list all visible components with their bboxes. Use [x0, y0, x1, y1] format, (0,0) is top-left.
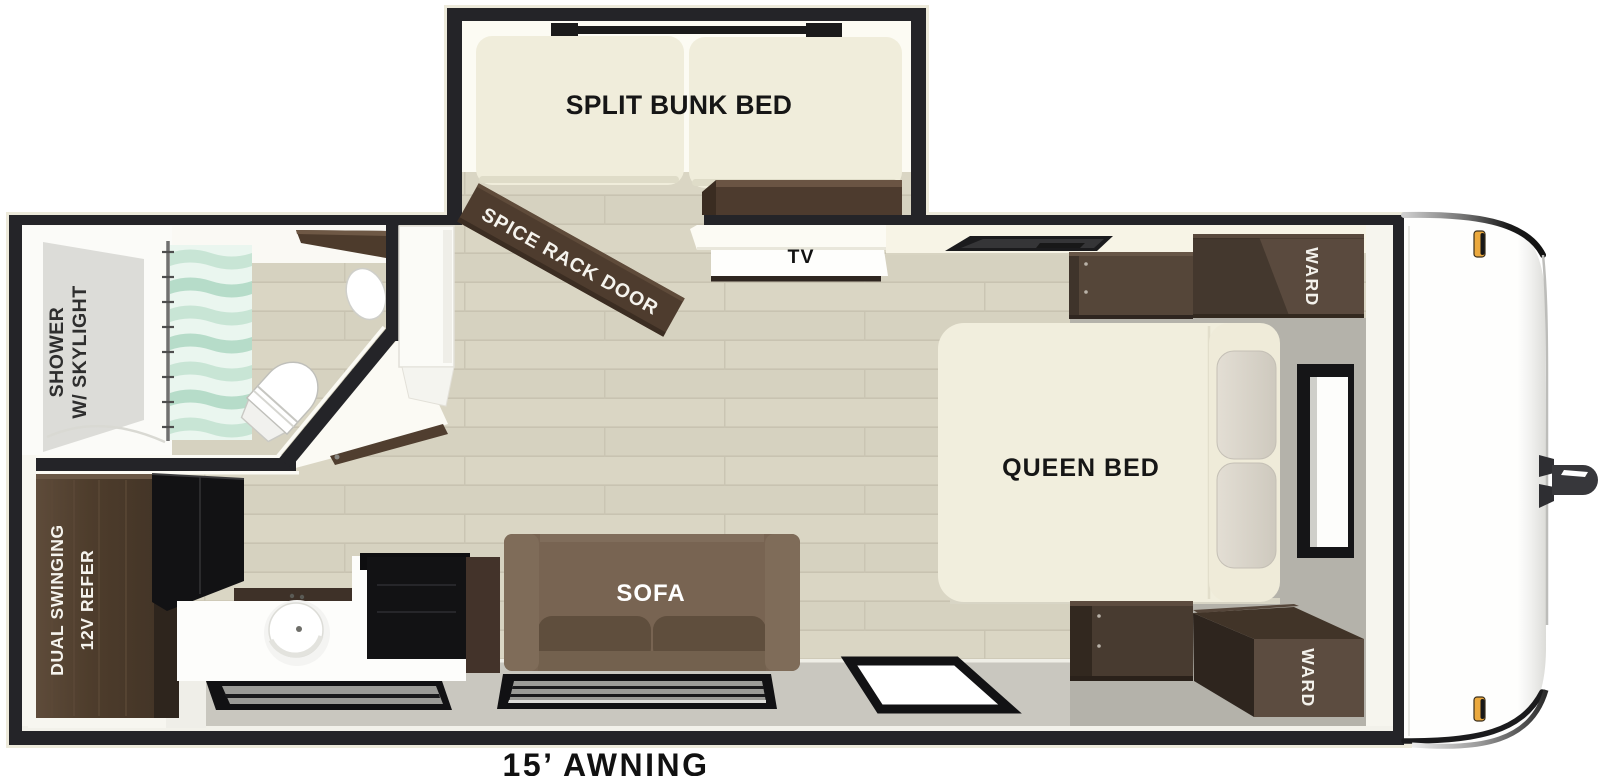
- svg-text:QUEEN BED: QUEEN BED: [1002, 454, 1160, 482]
- svg-text:W/ SKYLIGHT: W/ SKYLIGHT: [69, 285, 91, 418]
- svg-text:12V REFER: 12V REFER: [77, 550, 97, 651]
- svg-text:WARD: WARD: [1298, 648, 1318, 707]
- svg-text:15’ AWNING: 15’ AWNING: [503, 747, 710, 776]
- svg-text:WARD: WARD: [1302, 247, 1322, 306]
- svg-text:DUAL SWINGING: DUAL SWINGING: [47, 524, 67, 675]
- svg-text:TV: TV: [788, 246, 815, 268]
- svg-text:SPLIT BUNK BED: SPLIT BUNK BED: [566, 90, 793, 120]
- svg-text:SOFA: SOFA: [616, 580, 685, 607]
- svg-text:SHOWER: SHOWER: [46, 307, 68, 398]
